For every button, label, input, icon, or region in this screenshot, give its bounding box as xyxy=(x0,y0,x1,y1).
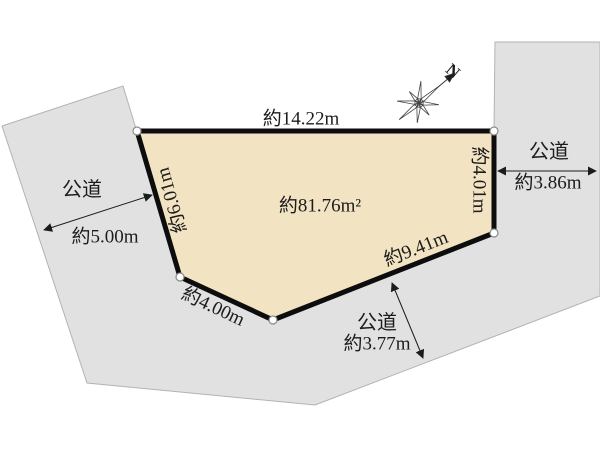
left-road-width-label: 約5.00m xyxy=(71,228,138,247)
vertex-marker xyxy=(176,273,184,281)
vertex-marker xyxy=(490,229,498,237)
left-road-name-label: 公道 xyxy=(62,180,102,200)
vertex-marker xyxy=(269,316,277,324)
right-road-name-label: 公道 xyxy=(529,142,569,162)
vertex-marker xyxy=(490,127,498,135)
edge-length-top-label: 約14.22m xyxy=(263,110,340,129)
bottom-road-name-label: 公道 xyxy=(357,313,397,333)
right-road-width-label: 約3.86m xyxy=(514,174,581,193)
plot-area-label: 約81.76m² xyxy=(279,197,361,216)
bottom-road-width-label: 約3.77m xyxy=(343,335,410,354)
edge-length-right-label: 約4.01m xyxy=(470,146,489,213)
vertex-marker xyxy=(133,127,141,135)
plot-survey-diagram: 約14.22m 約4.01m 約9.41m 約4.00m 約6.01m 約81.… xyxy=(0,0,600,450)
diagram-shapes xyxy=(0,0,600,450)
